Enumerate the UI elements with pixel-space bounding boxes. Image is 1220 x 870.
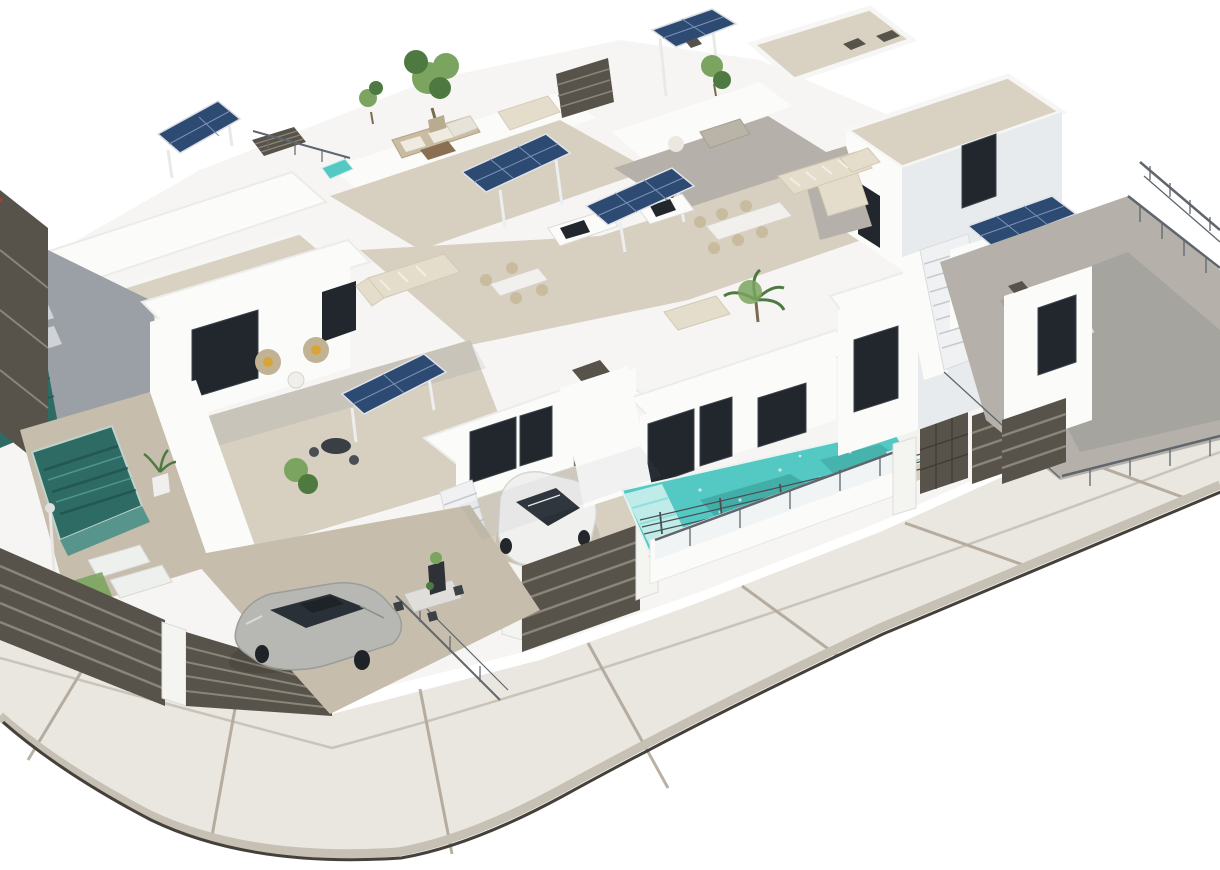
- fence-pillar: [162, 622, 186, 706]
- front-window: [854, 326, 898, 412]
- side-window: [962, 134, 996, 208]
- architectural-render: [0, 0, 1220, 870]
- villa-complex-scene: [0, 0, 1220, 870]
- solar-panel: [158, 101, 240, 153]
- side-table: [288, 372, 304, 388]
- wall-pillar: [893, 437, 916, 515]
- window-2: [520, 406, 552, 466]
- window-2: [700, 397, 732, 466]
- pouf: [668, 136, 684, 152]
- vase-plant: [430, 552, 442, 564]
- window: [1038, 295, 1076, 375]
